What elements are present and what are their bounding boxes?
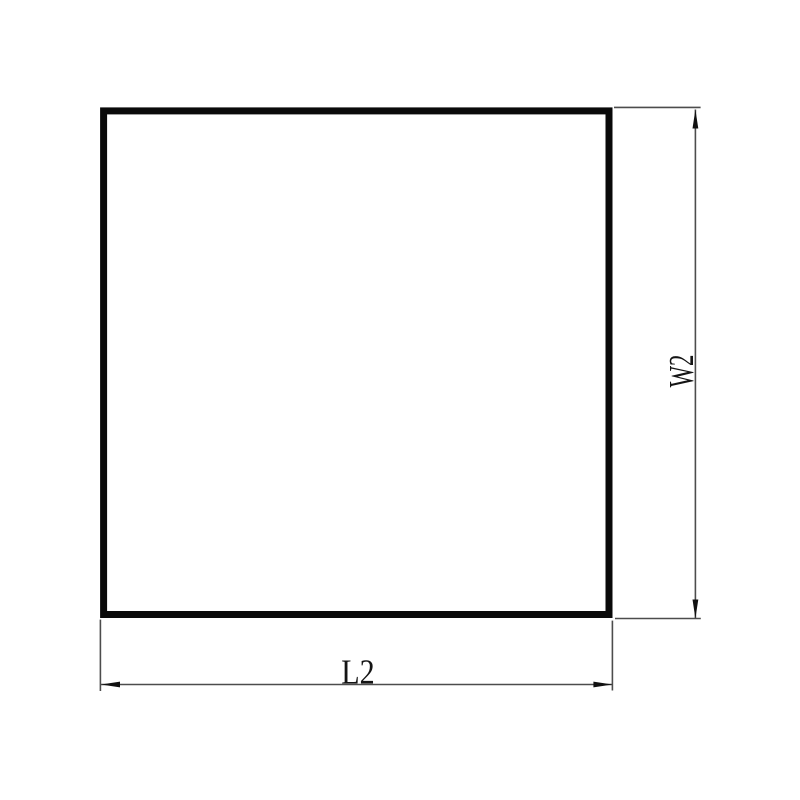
svg-text:L2: L2 [341,653,374,692]
svg-text:W2: W2 [663,355,701,388]
